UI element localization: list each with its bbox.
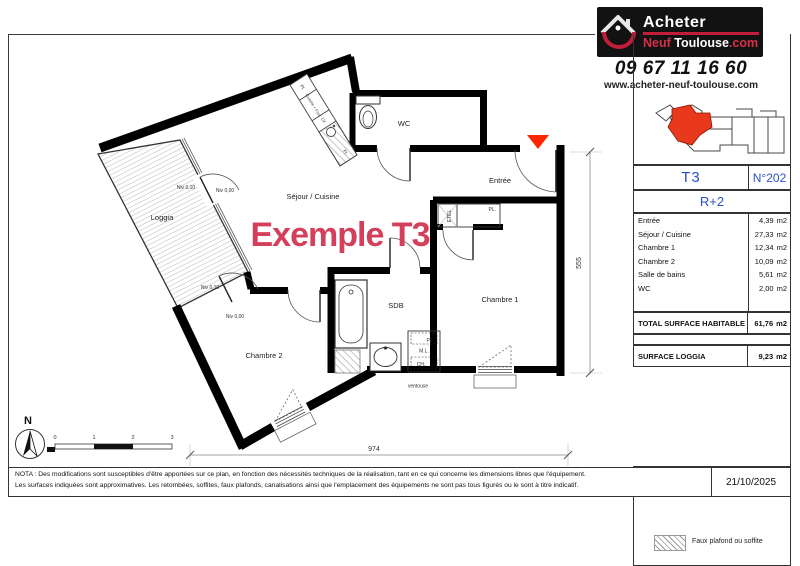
apartment-number: N°202 [749,166,790,189]
window-chambre1 [474,345,516,388]
scale-bar: 0 1 2 3 [47,435,174,452]
room-row-label: WC [634,284,748,293]
room-label-sdb: SDB [388,301,403,310]
niv010-upper: Niv 0,10 [177,185,196,191]
table-row: Entrée 4,39m2 [634,214,790,228]
plan-date: 21/10/2025 [711,468,790,496]
room-row-unit: m2 [777,216,787,225]
ch-label: CH. [417,362,426,368]
brand-name-line1: Acheter [643,14,759,31]
scale-2: 2 [131,435,134,441]
table-row: WC 2,00m2 [634,282,790,296]
niv010-lower: Niv 0,10 [201,285,220,291]
hatch-swatch [654,535,686,551]
room-row-unit: m2 [777,270,787,279]
loggia-unit: m2 [776,352,787,361]
niv000-upper: Niv 0,00 [216,188,235,194]
room-label-loggia: Loggia [151,213,174,222]
entrance-marker-triangle [527,135,549,149]
room-row-label: Chambre 2 [634,257,748,266]
watermark-text: Exemple T3 [251,216,430,254]
room-row-label: Entrée [634,216,748,225]
dim-974-label: 974 [368,446,380,453]
etel-label: ETEL [447,210,453,223]
titleblock-type-row: T3 N°202 [633,165,791,190]
total-value: 61,76 [754,319,773,328]
total-label: TOTAL SURFACE HABITABLE [634,313,748,333]
legend-label: Faux plafond ou soffite [692,538,763,545]
room-label-chambre2: Chambre 2 [245,351,282,360]
building-minimap [636,97,790,163]
nota-line1: NOTA : Des modifications sont susceptibl… [15,471,586,478]
room-row-value: 2,00 [759,284,774,293]
room-label-sejour: Séjour / Cuisine [287,192,340,201]
faux-plafond-hatch [335,350,360,373]
table-row: Chambre 1 12,34m2 [634,241,790,255]
loggia-area [98,138,252,308]
nota-line2: Les surfaces indiquées sont approximativ… [15,482,578,489]
niv000-lower: Niv 0,00 [226,314,245,320]
floor-level: R+2 [633,190,791,213]
table-row: Chambre 2 10,09m2 [634,255,790,269]
room-row-value: 27,33 [755,230,774,239]
bathtub [335,280,367,348]
toilet [356,96,380,129]
room-row-unit: m2 [777,284,787,293]
room-row-unit: m2 [777,230,787,239]
loggia-value: 9,23 [759,352,774,361]
nota-strip: NOTA : Des modifications sont susceptibl… [8,467,791,497]
scale-3: 3 [170,435,173,441]
north-arrow: N [16,415,45,459]
room-areas-table: Entrée 4,39m2 Séjour / Cuisine 27,33m2 C… [633,213,791,312]
room-row-value: 4,39 [759,216,774,225]
nota-text: NOTA : Des modifications sont susceptibl… [9,468,711,496]
room-row-value: 10,09 [755,257,774,266]
room-label-chambre1: Chambre 1 [481,295,518,304]
loggia-label: SURFACE LOGGIA [634,346,748,366]
dim-555-label: 555 [576,257,583,269]
room-label-wc: WC [398,119,411,128]
ml-label: M.L. [419,349,429,355]
pl-sdb-label: PL. [426,338,434,344]
room-label-entree: Entrée [489,176,511,185]
pl-entree-label: PL. [488,207,496,213]
table-divider [748,214,749,311]
room-row-value: 5,61 [759,270,774,279]
scale-0: 0 [53,435,56,441]
room-row-label: Séjour / Cuisine [634,230,748,239]
total-surface-row: TOTAL SURFACE HABITABLE 61,76m2 [633,312,791,334]
room-row-label: Chambre 1 [634,243,748,252]
north-label: N [24,415,32,427]
room-row-unit: m2 [777,257,787,266]
washbasin [370,343,401,371]
table-row: Séjour / Cuisine 27,33m2 [634,228,790,242]
apartment-type: T3 [634,166,749,189]
total-unit: m2 [776,319,787,328]
loggia-surface-row: SURFACE LOGGIA 9,23m2 [633,345,791,367]
scale-1: 1 [92,435,95,441]
dimension-555: 555 [570,148,602,377]
room-row-unit: m2 [777,243,787,252]
table-row: Salle de bains 5,61m2 [634,268,790,282]
room-row-label: Salle de bains [634,270,748,279]
spacer-row [633,334,791,345]
room-row-value: 12,34 [755,243,774,252]
ventouse-label: ventouse [408,384,429,390]
